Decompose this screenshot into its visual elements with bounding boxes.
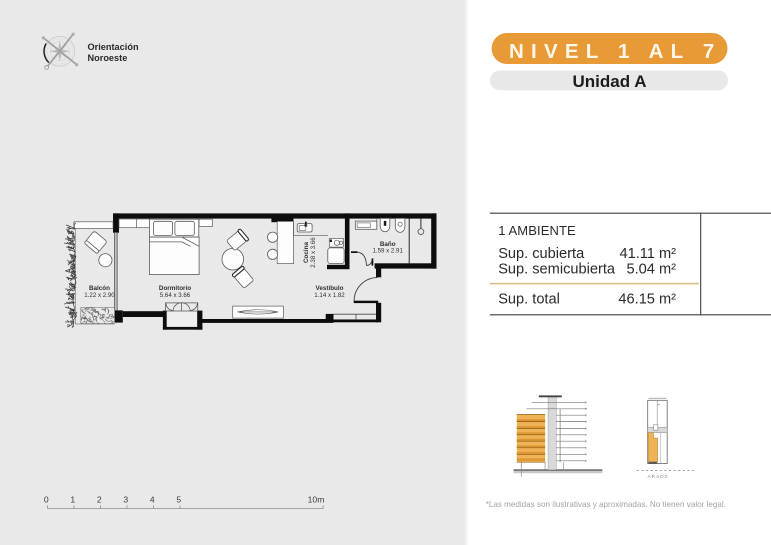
svg-text:Sup. cubierta: Sup. cubierta [498,246,585,262]
svg-text:2.38 x 3.66: 2.38 x 3.66 [310,237,317,268]
svg-text:5.04 m²: 5.04 m² [627,261,677,277]
svg-text:0: 0 [44,494,49,504]
svg-text:Unidad A: Unidad A [573,72,647,91]
svg-text:Sup. total: Sup. total [498,291,560,307]
svg-text:Balcón: Balcón [89,285,110,292]
svg-text:10m: 10m [308,494,325,504]
svg-text:*Las medidas son ilustrativas: *Las medidas son ilustrativas y aproxima… [486,500,726,509]
svg-text:Orientación: Orientación [88,42,139,52]
svg-text:3: 3 [123,494,128,504]
svg-text:1.22 x 2.90: 1.22 x 2.90 [84,292,115,299]
svg-text:NIVEL 1 AL 7: NIVEL 1 AL 7 [509,40,721,63]
svg-text:Noroeste: Noroeste [88,53,128,63]
svg-text:5: 5 [176,494,181,504]
svg-text:41.11 m²: 41.11 m² [619,246,676,262]
svg-text:1: 1 [70,494,75,504]
svg-text:Vestíbulo: Vestíbulo [316,285,344,292]
svg-text:1.14 x 1.82: 1.14 x 1.82 [314,292,345,299]
svg-text:2: 2 [97,494,102,504]
svg-text:1 AMBIENTE: 1 AMBIENTE [498,223,576,238]
svg-text:Cocina: Cocina [303,242,310,263]
svg-text:5.64 x 3.66: 5.64 x 3.66 [160,292,191,299]
svg-text:Sup. semicubierta: Sup. semicubierta [498,261,616,277]
svg-text:46.15 m²: 46.15 m² [618,291,676,307]
svg-text:4: 4 [150,494,155,504]
svg-text:ARAOZ: ARAOZ [647,474,668,480]
svg-text:Dormitorio: Dormitorio [159,285,191,292]
svg-text:1.59 x 2.91: 1.59 x 2.91 [373,247,404,254]
